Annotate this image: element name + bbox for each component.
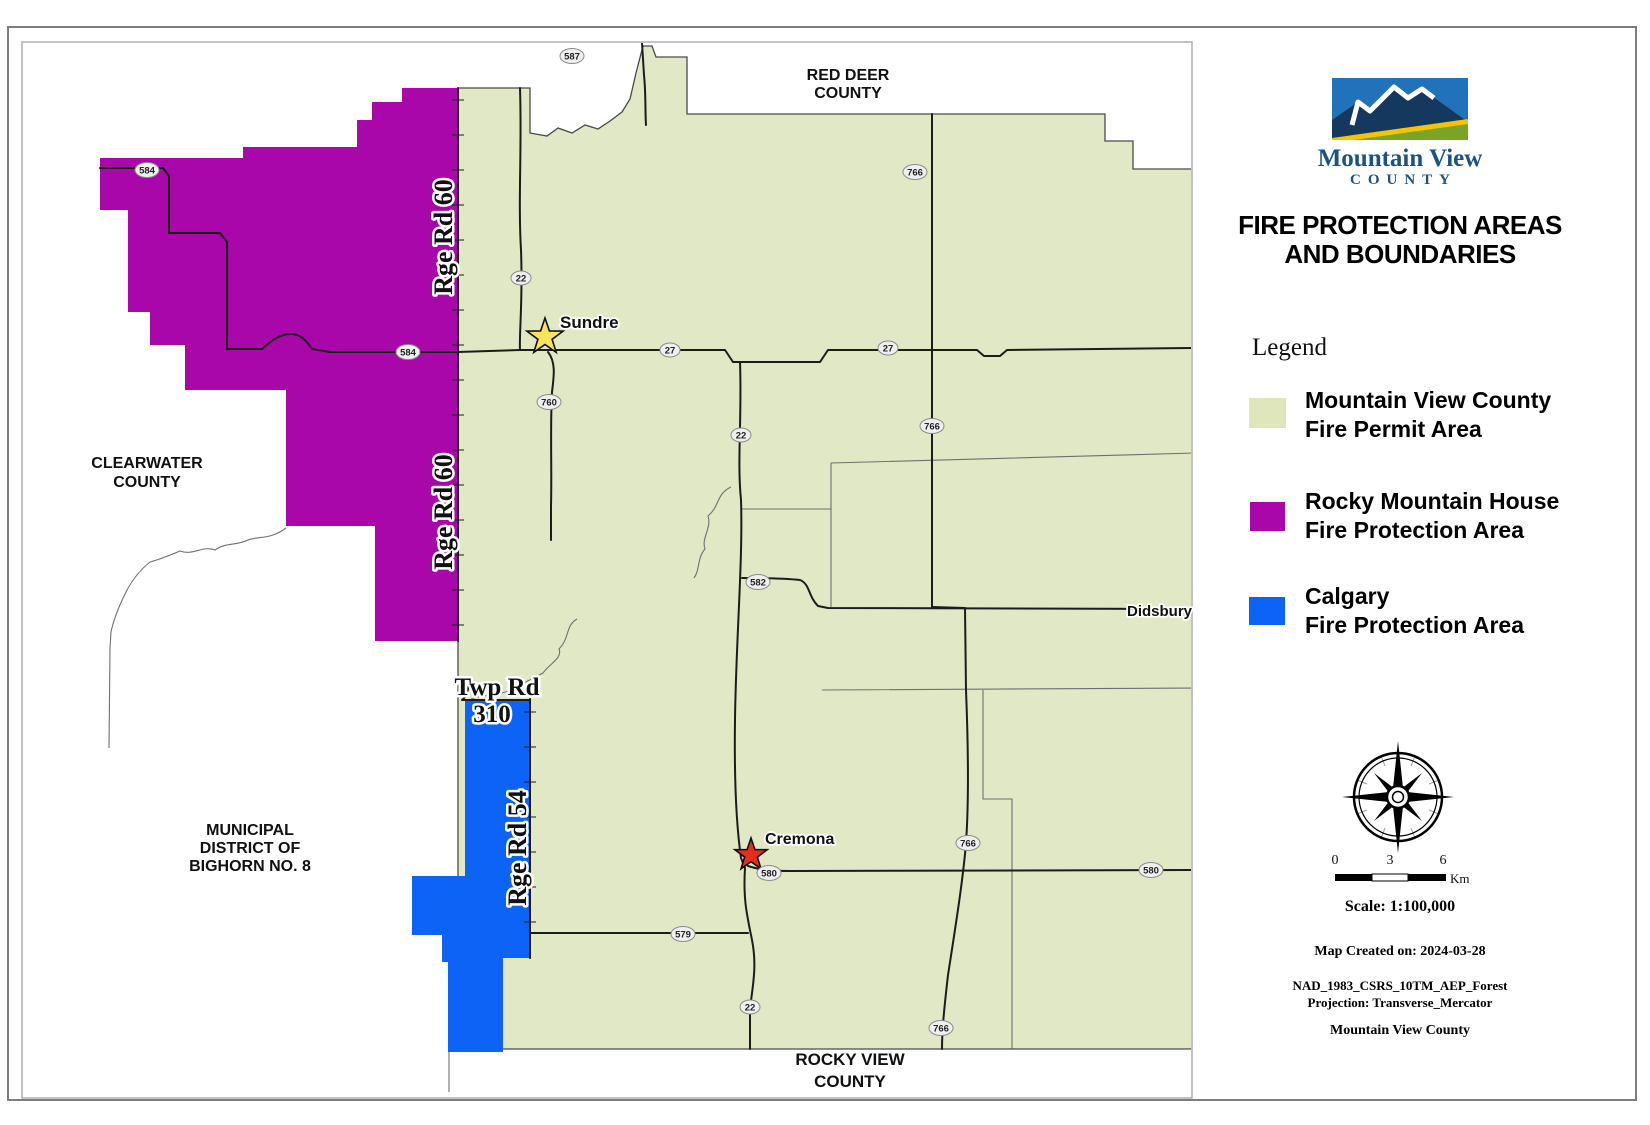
scale-tick-6: 6 bbox=[1440, 853, 1447, 868]
svg-text:760: 760 bbox=[541, 398, 557, 409]
legend-swatch-fire-permit bbox=[1249, 398, 1286, 428]
bighorn-label-line1: MUNICIPAL bbox=[206, 822, 294, 839]
sundre-label: Sundre bbox=[560, 313, 619, 332]
svg-text:584: 584 bbox=[400, 348, 417, 359]
legend-label-rmh-line1: Rocky Mountain House bbox=[1305, 487, 1559, 516]
shield-580-east: 580 bbox=[1139, 863, 1163, 878]
scale-tick-3: 3 bbox=[1387, 853, 1394, 868]
shield-22-south: 22 bbox=[740, 1000, 760, 1014]
shield-766-south: 766 bbox=[929, 1021, 953, 1036]
svg-text:27: 27 bbox=[665, 346, 676, 357]
scale-text: Scale: 1:100,000 bbox=[1193, 898, 1607, 916]
twp-rd-label: Twp Rd bbox=[455, 674, 540, 701]
shield-22-north: 22 bbox=[511, 271, 531, 285]
svg-text:22: 22 bbox=[736, 431, 747, 442]
legend-label-fire-permit-line2: Fire Permit Area bbox=[1305, 415, 1551, 444]
rocky-view-county-label-line2: COUNTY bbox=[814, 1072, 886, 1091]
svg-text:584: 584 bbox=[139, 166, 156, 177]
shield-22-mid: 22 bbox=[731, 428, 751, 442]
shield-766-top: 766 bbox=[903, 165, 927, 180]
legend-label-fire-permit-line1: Mountain View County bbox=[1305, 386, 1551, 415]
legend-swatch-rocky-mountain-house bbox=[1250, 502, 1285, 531]
map-title-line2: AND BOUNDARIES bbox=[1193, 240, 1607, 269]
projection-line2: Projection: Transverse_Mercator bbox=[1193, 995, 1607, 1011]
shield-579: 579 bbox=[671, 927, 695, 942]
legend-label-fire-permit: Mountain View County Fire Permit Area bbox=[1305, 386, 1551, 444]
shield-766-mid: 766 bbox=[920, 419, 944, 434]
svg-text:587: 587 bbox=[564, 52, 580, 63]
rge-rd-60-south-label: Rge Rd 60 bbox=[429, 454, 458, 570]
scale-tick-0: 0 bbox=[1332, 853, 1339, 868]
logo-wordmark: Mountain View bbox=[1193, 145, 1607, 173]
legend-label-rocky-mountain-house: Rocky Mountain House Fire Protection Are… bbox=[1305, 487, 1559, 545]
didsbury-label: Didsbury bbox=[1127, 603, 1193, 620]
legend-label-calgary-line2: Fire Protection Area bbox=[1305, 611, 1524, 640]
bighorn-label-line3: BIGHORN NO. 8 bbox=[189, 858, 311, 875]
scale-unit-label: Km bbox=[1450, 871, 1470, 886]
red-deer-county-label-line2: COUNTY bbox=[814, 85, 882, 102]
county-logo-icon bbox=[1332, 78, 1468, 140]
logo-wordmark-sub: COUNTY bbox=[1193, 172, 1607, 189]
svg-text:579: 579 bbox=[675, 930, 691, 941]
twp-rd-310-label: 310 bbox=[473, 701, 511, 728]
legend-heading: Legend bbox=[1252, 334, 1327, 362]
svg-text:27: 27 bbox=[883, 344, 894, 355]
shield-27-east: 27 bbox=[878, 341, 898, 355]
svg-text:766: 766 bbox=[924, 422, 940, 433]
legend-label-rmh-line2: Fire Protection Area bbox=[1305, 516, 1559, 545]
shield-584-east: 584 bbox=[396, 345, 420, 360]
fire-permit-area-polygon bbox=[458, 46, 1196, 1049]
svg-text:582: 582 bbox=[750, 578, 766, 589]
rge-rd-54-label: Rge Rd 54 bbox=[503, 790, 532, 906]
projection-line1: NAD_1983_CSRS_10TM_AEP_Forest bbox=[1193, 978, 1607, 994]
shield-587: 587 bbox=[560, 49, 584, 64]
legend-label-calgary-line1: Calgary bbox=[1305, 582, 1524, 611]
svg-text:766: 766 bbox=[960, 839, 976, 850]
map-created-date: Map Created on: 2024-03-28 bbox=[1193, 944, 1607, 960]
shield-582: 582 bbox=[746, 575, 770, 590]
rocky-view-county-label-line1: ROCKY VIEW bbox=[795, 1050, 905, 1069]
clearwater-county-label-line2: COUNTY bbox=[113, 474, 181, 491]
clearwater-county-label-line1: CLEARWATER bbox=[91, 455, 203, 472]
svg-text:766: 766 bbox=[933, 1024, 949, 1035]
bighorn-label-line2: DISTRICT OF bbox=[200, 840, 301, 857]
svg-text:580: 580 bbox=[1143, 866, 1159, 877]
shield-580-west: 580 bbox=[757, 866, 781, 881]
cremona-label: Cremona bbox=[765, 831, 834, 848]
map-sheet: 587 584 584 22 27 27 760 766 766 22 582 … bbox=[0, 0, 1650, 1125]
svg-text:766: 766 bbox=[907, 168, 923, 179]
shield-766-cremona: 766 bbox=[956, 836, 980, 851]
shield-584-west: 584 bbox=[135, 163, 159, 178]
shield-27-west: 27 bbox=[660, 343, 680, 357]
shield-760: 760 bbox=[537, 395, 561, 410]
legend-swatch-calgary bbox=[1249, 597, 1285, 625]
svg-text:22: 22 bbox=[516, 274, 527, 285]
rge-rd-60-north-label: Rge Rd 60 bbox=[429, 179, 458, 295]
red-deer-county-label-line1: RED DEER bbox=[807, 67, 890, 84]
svg-text:580: 580 bbox=[761, 869, 777, 880]
sidebar-footer: Mountain View County bbox=[1193, 1023, 1607, 1039]
map-title-line1: FIRE PROTECTION AREAS bbox=[1193, 211, 1607, 240]
legend-label-calgary: Calgary Fire Protection Area bbox=[1305, 582, 1524, 640]
svg-text:22: 22 bbox=[745, 1003, 756, 1014]
